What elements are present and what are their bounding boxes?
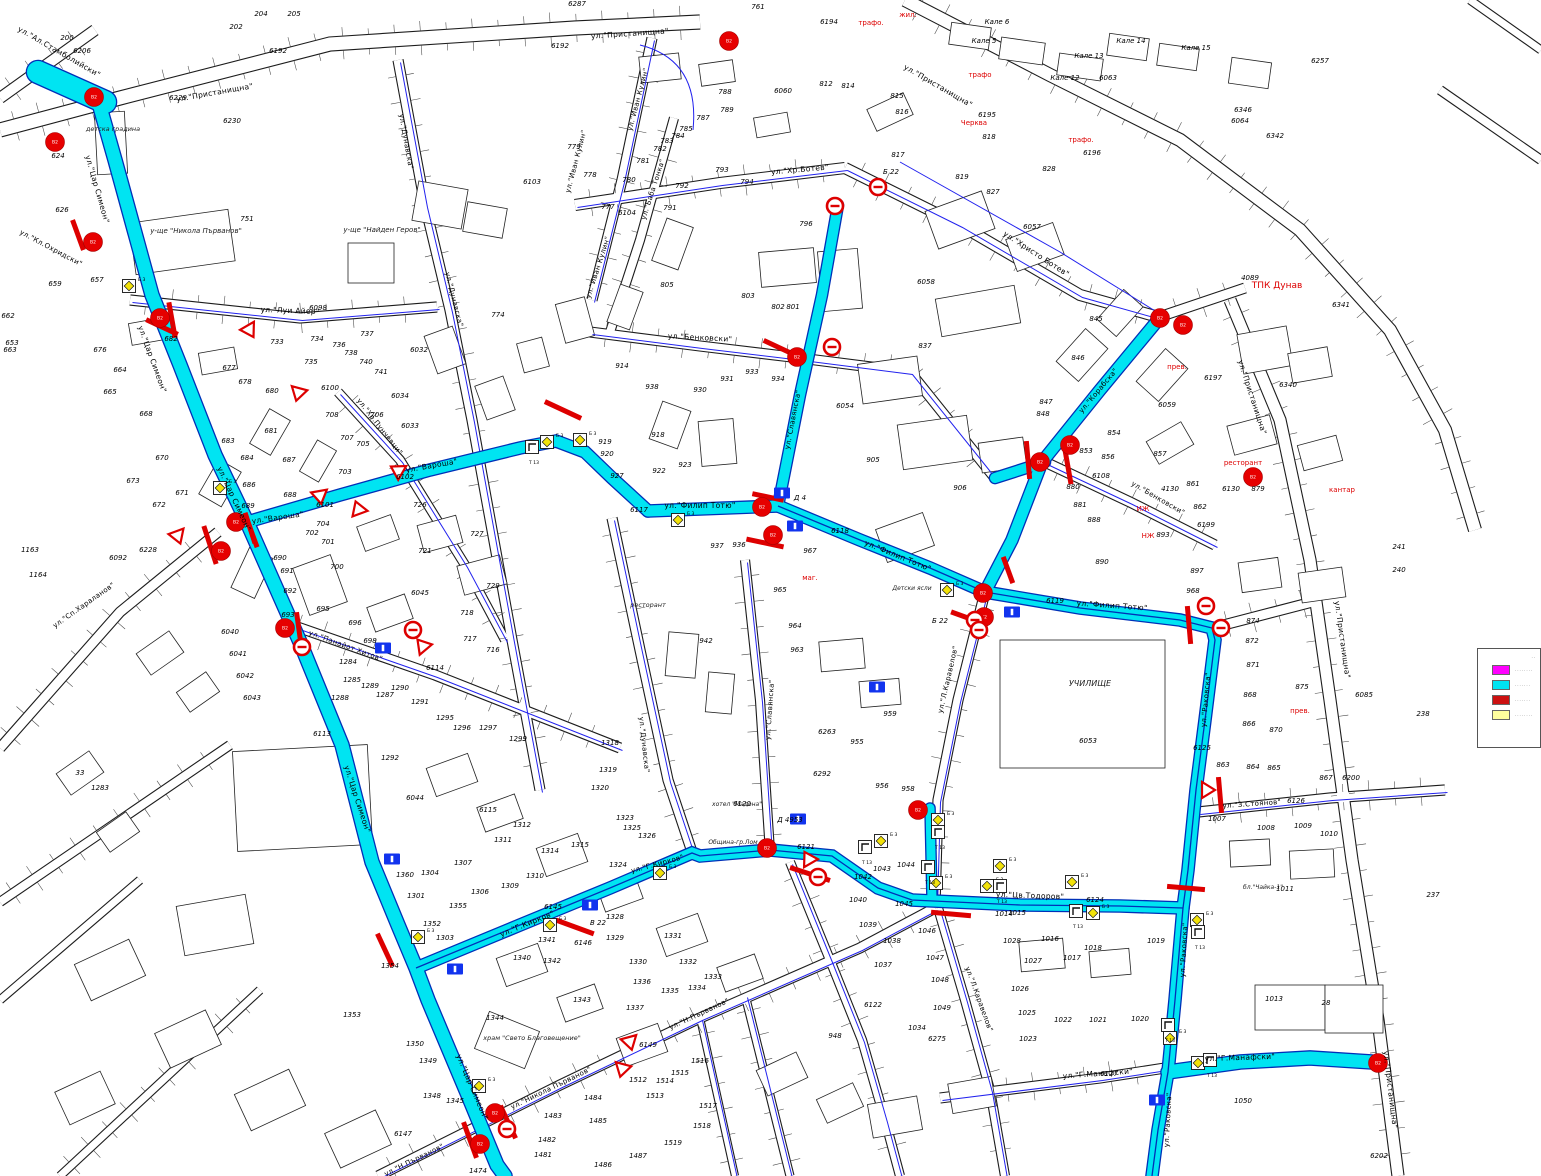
parcel-boundary-tick	[908, 187, 911, 193]
parcel-number: 1309	[501, 882, 519, 890]
parcel-boundary-tick	[932, 197, 936, 205]
parcel-number: 1015	[1008, 909, 1026, 917]
parcel-number: 787	[696, 114, 710, 122]
parcel-boundary-tick	[446, 553, 452, 557]
parcel-number: 930	[693, 386, 707, 394]
parcel-boundary-tick	[170, 1080, 175, 1086]
parcel-boundary-tick	[717, 1136, 723, 1137]
parcel-number: 1026	[1011, 985, 1029, 993]
parcel-number: 6034	[391, 392, 409, 400]
parcel-boundary-tick	[488, 703, 491, 711]
parcel-boundary-tick	[113, 86, 115, 92]
parcel-number: 6043	[243, 694, 261, 702]
poi-label-red: трафо	[968, 71, 991, 79]
parcel-boundary-tick	[1000, 1122, 1009, 1124]
parcel-boundary-tick	[934, 388, 941, 394]
parcel-number: 812	[819, 80, 833, 88]
parcel-boundary-tick	[1300, 484, 1307, 485]
parcel-number: 1340	[513, 954, 531, 962]
parcel-boundary-tick	[456, 408, 465, 410]
parcel-boundary-tick	[1343, 898, 1352, 899]
parcel-boundary-tick	[409, 179, 415, 180]
parcel-number: 1291	[411, 698, 429, 706]
info-sign-glyph	[1156, 1097, 1159, 1103]
parcel-boundary-tick	[59, 867, 63, 873]
parcel-number: 881	[1073, 501, 1086, 509]
parcel-boundary-tick	[966, 1050, 974, 1052]
parcel-boundary-tick	[741, 1037, 751, 1039]
parcel-boundary-tick	[810, 895, 819, 899]
parcel-boundary-tick	[1109, 480, 1112, 486]
parcel-number: 905	[866, 456, 880, 464]
parcel-boundary-tick	[684, 808, 693, 811]
parcel-boundary-tick	[420, 21, 421, 31]
parcel-boundary-tick	[113, 809, 118, 816]
parcel-boundary-tick	[1469, 486, 1475, 488]
building-footprint	[176, 894, 254, 955]
parcel-boundary-tick	[1296, 564, 1304, 565]
parcel-boundary-tick	[120, 1102, 126, 1109]
parcel-boundary-tick	[1318, 804, 1319, 810]
parcel-boundary-tick	[196, 312, 197, 319]
parcel-number: 856	[1101, 453, 1115, 461]
parcel-boundary-tick	[748, 705, 756, 706]
cadastral-map-canvas: В2В2В2В2В2В2В2В2В2В2В2В2В2В2В2В2В2В2В2В2…	[0, 0, 1541, 1176]
parcel-boundary-tick	[513, 714, 521, 715]
parcel-number: 6064	[1231, 117, 1249, 125]
parcel-number: 870	[1269, 726, 1283, 734]
parcel-boundary-tick	[841, 1023, 850, 1027]
parcel-boundary-tick	[632, 231, 638, 233]
parcel-boundary-tick	[118, 106, 120, 112]
parcel-boundary-tick	[1197, 288, 1200, 297]
parcel-boundary-tick	[1406, 341, 1414, 345]
poi-label: Община-гр.Лом	[708, 839, 758, 846]
parcel-boundary-tick	[534, 1104, 538, 1113]
parcel-number: 6196	[1083, 149, 1101, 157]
parcel-number: 958	[901, 785, 915, 793]
parcel-number: 1287	[376, 691, 394, 699]
parcel-boundary-tick	[472, 19, 473, 28]
parcel-boundary-tick	[1323, 744, 1330, 745]
building-footprint	[536, 833, 588, 876]
parcel-number: 704	[316, 520, 329, 528]
yield-sign	[168, 529, 187, 547]
parcel-boundary-tick	[1137, 1077, 1138, 1084]
building-footprint	[1289, 849, 1334, 879]
parcel-boundary-tick	[516, 635, 523, 636]
parcel-boundary-tick	[1305, 253, 1312, 259]
parcel-number: 1315	[571, 841, 589, 849]
building-footprint	[55, 1071, 116, 1125]
street-name-label: ул."Дунавска"	[637, 716, 651, 773]
parcel-boundary-tick	[1285, 513, 1294, 515]
parcel-number: 6100	[321, 384, 339, 392]
parcel-number: 879	[1251, 485, 1265, 493]
legend-swatch-magenta	[1492, 665, 1510, 675]
road-fill	[612, 518, 692, 852]
road-fill	[1440, 90, 1541, 160]
parcel-boundary-tick	[395, 47, 396, 55]
parcel-boundary-tick	[1097, 108, 1101, 116]
parcel-boundary-tick	[911, 927, 914, 933]
parcel-number: 6053	[1079, 737, 1097, 745]
parcel-boundary-tick	[757, 626, 764, 627]
parcel-number: 854	[1107, 429, 1120, 437]
info-sign-glyph	[391, 856, 394, 862]
parcel-number: 1048	[931, 976, 949, 984]
parcel-number: 676	[93, 346, 107, 354]
parcel-boundary-tick	[658, 130, 666, 132]
parcel-number: 1513	[646, 1092, 664, 1100]
parcel-boundary-tick	[319, 54, 321, 61]
parcel-boundary-tick	[136, 605, 140, 610]
parcel-number: 6117	[630, 506, 648, 514]
no-entry-bar	[503, 1128, 512, 1130]
parcel-number: 6033	[401, 422, 419, 430]
parcel-number: 6124	[1086, 896, 1104, 904]
parcel-number: 1034	[908, 1024, 926, 1032]
parcel-number: 802	[771, 303, 785, 311]
parcel-boundary-tick	[1290, 788, 1291, 797]
poi-label-red: маг.	[802, 574, 817, 582]
parcel-number: 865	[1267, 764, 1281, 772]
parcel-boundary-tick	[833, 999, 840, 1002]
parcel-boundary-tick	[1241, 173, 1245, 178]
parcel-number: 1320	[591, 784, 609, 792]
parcel-number: 914	[615, 362, 628, 370]
parcel-boundary-tick	[16, 93, 21, 100]
parcel-boundary-tick	[343, 50, 344, 59]
parcel-boundary-tick	[1435, 442, 1442, 444]
parcel-boundary-tick	[405, 315, 406, 323]
yield-sign	[1202, 782, 1215, 798]
parcel-boundary-tick	[404, 297, 405, 305]
parcel-boundary-tick	[614, 586, 621, 587]
parcel-number: 204	[254, 10, 267, 18]
building-footprint	[96, 812, 139, 852]
parcel-boundary-tick	[896, 1142, 906, 1145]
parcel-number: 6041	[229, 650, 247, 658]
parcel-boundary-tick	[586, 741, 589, 748]
parcel-boundary-tick	[429, 281, 438, 283]
parcel-boundary-tick	[1454, 436, 1461, 438]
parcel-boundary-tick	[356, 426, 363, 433]
parcel-number: 1027	[1024, 957, 1042, 965]
parcel-number: 726	[413, 501, 427, 509]
parcel-boundary-tick	[759, 358, 760, 368]
parcel-number: 1482	[538, 1136, 556, 1144]
parcel-boundary-tick	[1377, 972, 1387, 974]
parcel-boundary-tick	[784, 879, 791, 882]
parcel-boundary-tick	[762, 678, 768, 679]
parcel-boundary-tick	[1324, 612, 1331, 613]
parcel-boundary-tick	[14, 739, 20, 744]
priority-sign-code: Б 3	[947, 811, 955, 817]
parcel-boundary-tick	[759, 1032, 769, 1034]
parcel-number: 761	[751, 3, 764, 11]
parcel-number: 6230	[223, 117, 241, 125]
parcel-number: 6118	[831, 527, 849, 535]
parcel-boundary-tick	[769, 993, 773, 1002]
parcel-boundary-tick	[198, 295, 199, 302]
building-footprint	[234, 1069, 305, 1131]
parcel-boundary-tick	[132, 1115, 138, 1122]
parcel-number: 1516	[691, 1057, 709, 1065]
parcel-number: 815	[890, 92, 904, 100]
parcel-number: 6195	[978, 111, 996, 119]
poi-label: у-ще "Найден Геров"	[342, 226, 420, 234]
junction-sign-code: Т 13	[861, 860, 872, 866]
parcel-boundary-tick	[418, 1162, 422, 1171]
priority-sign-code: Б 3	[559, 916, 567, 922]
parcel-boundary-tick	[421, 45, 422, 55]
parcel-number: 1288	[331, 694, 349, 702]
building-footprint	[1298, 567, 1346, 603]
parcel-number: 1022	[1054, 1016, 1072, 1024]
parcel-number: 6121	[797, 843, 815, 851]
parcel-boundary-tick	[951, 760, 961, 762]
parcel-number: 6149	[639, 1041, 657, 1049]
parcel-number: 1285	[343, 676, 361, 684]
parcel-boundary-tick	[761, 338, 762, 348]
parcel-number: 1330	[629, 958, 647, 966]
parcel-boundary-tick	[521, 660, 530, 662]
parcel-boundary-tick	[113, 1133, 118, 1138]
parcel-number: 684	[240, 454, 253, 462]
parcel-number: 6054	[836, 402, 854, 410]
poi-label: ресторант	[629, 601, 666, 609]
parcel-boundary-tick	[1333, 821, 1341, 822]
parcel-boundary-tick	[718, 1082, 725, 1084]
parcel-boundary-tick	[12, 111, 14, 119]
parcel-number: 688	[283, 491, 297, 499]
parcel-boundary-tick	[903, 912, 906, 918]
parcel-boundary-tick	[572, 1063, 576, 1071]
parcel-boundary-tick	[960, 629, 970, 631]
parcel-boundary-tick	[1370, 1052, 1376, 1053]
parcel-boundary-tick	[463, 433, 469, 434]
parcel-boundary-tick	[653, 210, 662, 212]
parcel-boundary-tick	[741, 654, 750, 655]
stop-sign-code: В2	[157, 316, 163, 322]
parcel-boundary-tick	[479, 430, 485, 431]
building-footprint	[348, 243, 394, 283]
parcel-number: 1017	[1063, 954, 1081, 962]
parcel-number: 1343	[573, 996, 591, 1004]
parcel-boundary-tick	[314, 34, 316, 41]
priority-sign-code: Б 3	[556, 433, 564, 439]
parcel-boundary-tick	[1006, 61, 1009, 66]
no-entry-bar	[828, 346, 837, 348]
parcel-boundary-tick	[294, 61, 296, 71]
legend-title: ··	[1492, 655, 1536, 660]
parcel-number: 1310	[526, 872, 544, 880]
parcel-number: 1360	[396, 871, 414, 879]
priority-sign-code: Б 3	[956, 581, 964, 587]
parcel-boundary-tick	[1131, 103, 1134, 108]
building-footprint	[717, 954, 763, 992]
parcel-boundary-tick	[646, 235, 652, 237]
parcel-boundary-tick	[692, 833, 699, 835]
parcel-number: 801	[786, 303, 799, 311]
parcel-number: 6108	[1092, 472, 1110, 480]
building-footprint	[1229, 839, 1270, 867]
parcel-boundary-tick	[1223, 317, 1230, 320]
parcel-boundary-tick	[950, 410, 955, 414]
parcel-boundary-tick	[764, 1112, 770, 1113]
parcel-number: 1284	[339, 658, 357, 666]
parcel-number: 6206	[73, 47, 91, 55]
stop-sign-code: В2	[282, 626, 288, 632]
parcel-boundary-tick	[649, 155, 659, 158]
parcel-boundary-tick	[1401, 1153, 1410, 1154]
parcel-number: 880	[1066, 483, 1080, 491]
parcel-number: 6287	[568, 0, 586, 8]
parcel-number: 1474	[469, 1167, 487, 1175]
parcel-number: 1354	[381, 962, 399, 970]
parcel-boundary-tick	[1230, 188, 1234, 193]
parcel-boundary-tick	[825, 975, 831, 977]
parcel-boundary-tick	[643, 106, 650, 107]
parcel-number: 691	[280, 567, 293, 575]
parcel-boundary-tick	[465, 693, 468, 700]
parcel-number: 736	[332, 341, 346, 349]
parcel-number: 6119	[1046, 597, 1064, 605]
poi-label: бл."Чайка-1"	[1243, 884, 1283, 891]
parcel-boundary-tick	[1372, 946, 1380, 947]
parcel-number: 955	[850, 738, 864, 746]
parcel-boundary-tick	[1193, 542, 1198, 551]
parcel-number: 237	[1426, 891, 1440, 899]
parcel-number: 1519	[664, 1139, 682, 1147]
parcel-number: 1485	[589, 1117, 607, 1125]
parcel-boundary-tick	[327, 321, 328, 328]
parcel-number: 1289	[361, 682, 379, 690]
parcel-boundary-tick	[1173, 298, 1176, 306]
parcel-boundary-tick	[222, 315, 223, 324]
parcel-boundary-tick	[1331, 664, 1337, 665]
parcel-boundary-tick	[622, 254, 630, 256]
priority-sign-code: Б 3	[138, 277, 146, 283]
parcel-boundary-tick	[417, 675, 420, 683]
parcel-boundary-tick	[26, 866, 32, 874]
parcel-boundary-tick	[318, 641, 321, 650]
parcel-boundary-tick	[201, 752, 204, 757]
building-footprint	[426, 753, 478, 796]
parcel-boundary-tick	[875, 1067, 884, 1069]
parcel-number: 1050	[1234, 1097, 1252, 1105]
parcel-boundary-tick	[720, 1161, 728, 1163]
priority-sign-code: Б 3	[687, 511, 695, 517]
parcel-boundary-tick	[840, 969, 846, 971]
parcel-boundary-tick	[1269, 219, 1275, 227]
parcel-number: 874	[1246, 617, 1259, 625]
parcel-number: 1514	[656, 1077, 674, 1085]
road-closure-bar	[544, 399, 582, 420]
parcel-number: Кале 12	[1050, 74, 1080, 82]
parcel-boundary-tick	[793, 983, 796, 989]
parcel-boundary-tick	[118, 622, 125, 629]
parcel-boundary-tick	[432, 499, 439, 503]
parcel-boundary-tick	[603, 535, 611, 537]
parcel-number: 828	[1042, 165, 1056, 173]
parcel-boundary-tick	[751, 575, 759, 576]
parcel-number: 693	[281, 611, 294, 619]
parcel-number: 6228	[139, 546, 157, 554]
parcel-number: 6040	[221, 628, 239, 636]
parcel-number: 718	[460, 609, 474, 617]
parcel-boundary-tick	[561, 732, 565, 741]
parcel-boundary-tick	[1373, 1104, 1383, 1105]
parcel-boundary-tick	[620, 531, 628, 533]
parcel-number: Кале 6	[985, 18, 1010, 26]
info-sign-glyph	[794, 523, 797, 529]
building-footprint	[1089, 948, 1131, 977]
parcel-boundary-tick	[1167, 143, 1171, 152]
parcel-number: 698	[363, 637, 377, 645]
no-entry-bar	[814, 876, 823, 878]
building-footprint	[607, 284, 643, 330]
parcel-boundary-tick	[1385, 1024, 1394, 1025]
parcel-number: 6045	[411, 589, 429, 597]
building-footprint	[176, 672, 219, 712]
parcel-boundary-tick	[144, 574, 150, 581]
parcel-number: 868	[1243, 691, 1257, 699]
parcel-boundary-tick	[17, 133, 19, 141]
parcel-boundary-tick	[188, 66, 190, 73]
building-footprint	[935, 285, 1020, 336]
info-sign-glyph	[781, 490, 784, 496]
parcel-boundary-tick	[568, 713, 572, 722]
parcel-boundary-tick	[1249, 603, 1252, 613]
building-footprint	[858, 356, 923, 404]
parcel-boundary-tick	[990, 1069, 1000, 1072]
parcel-boundary-tick	[1266, 810, 1267, 817]
parcel-number: 6199	[1197, 521, 1215, 529]
parcel-boundary-tick	[865, 353, 866, 361]
parcel-number: 818	[982, 133, 996, 141]
stop-sign-code: В2	[764, 846, 770, 852]
parcel-boundary-tick	[752, 783, 761, 784]
parcel-number: 785	[679, 125, 693, 133]
parcel-boundary-tick	[526, 686, 532, 687]
map-svg: В2В2В2В2В2В2В2В2В2В2В2В2В2В2В2В2В2В2В2В2…	[0, 0, 1541, 1176]
parcel-number: 890	[1095, 558, 1109, 566]
stop-sign-code: В2	[794, 355, 800, 361]
parcel-number: 778	[583, 171, 597, 179]
parcel-boundary-tick	[1293, 539, 1299, 540]
parcel-boundary-tick	[704, 1085, 711, 1087]
parcel-number: 659	[48, 280, 62, 288]
parcel-number: 1020	[1131, 1015, 1149, 1023]
street-name-label: ул."Славянска"	[764, 679, 776, 740]
parcel-number: 707	[340, 434, 354, 442]
parcel-boundary-tick	[631, 582, 638, 583]
parcel-number: 788	[718, 88, 732, 96]
parcel-boundary-tick	[423, 658, 426, 666]
parcel-number: Б 22	[883, 168, 899, 176]
parcel-number: 888	[1087, 516, 1101, 524]
parcel-boundary-tick	[188, 780, 193, 787]
parcel-boundary-tick	[1177, 122, 1181, 131]
parcel-boundary-tick	[1376, 331, 1381, 336]
parcel-boundary-tick	[460, 544, 466, 548]
parcel-boundary-tick	[495, 685, 498, 693]
building-footprint	[357, 515, 400, 552]
parcel-boundary-tick	[1325, 273, 1329, 277]
parcel-number: 6125	[1193, 744, 1211, 752]
